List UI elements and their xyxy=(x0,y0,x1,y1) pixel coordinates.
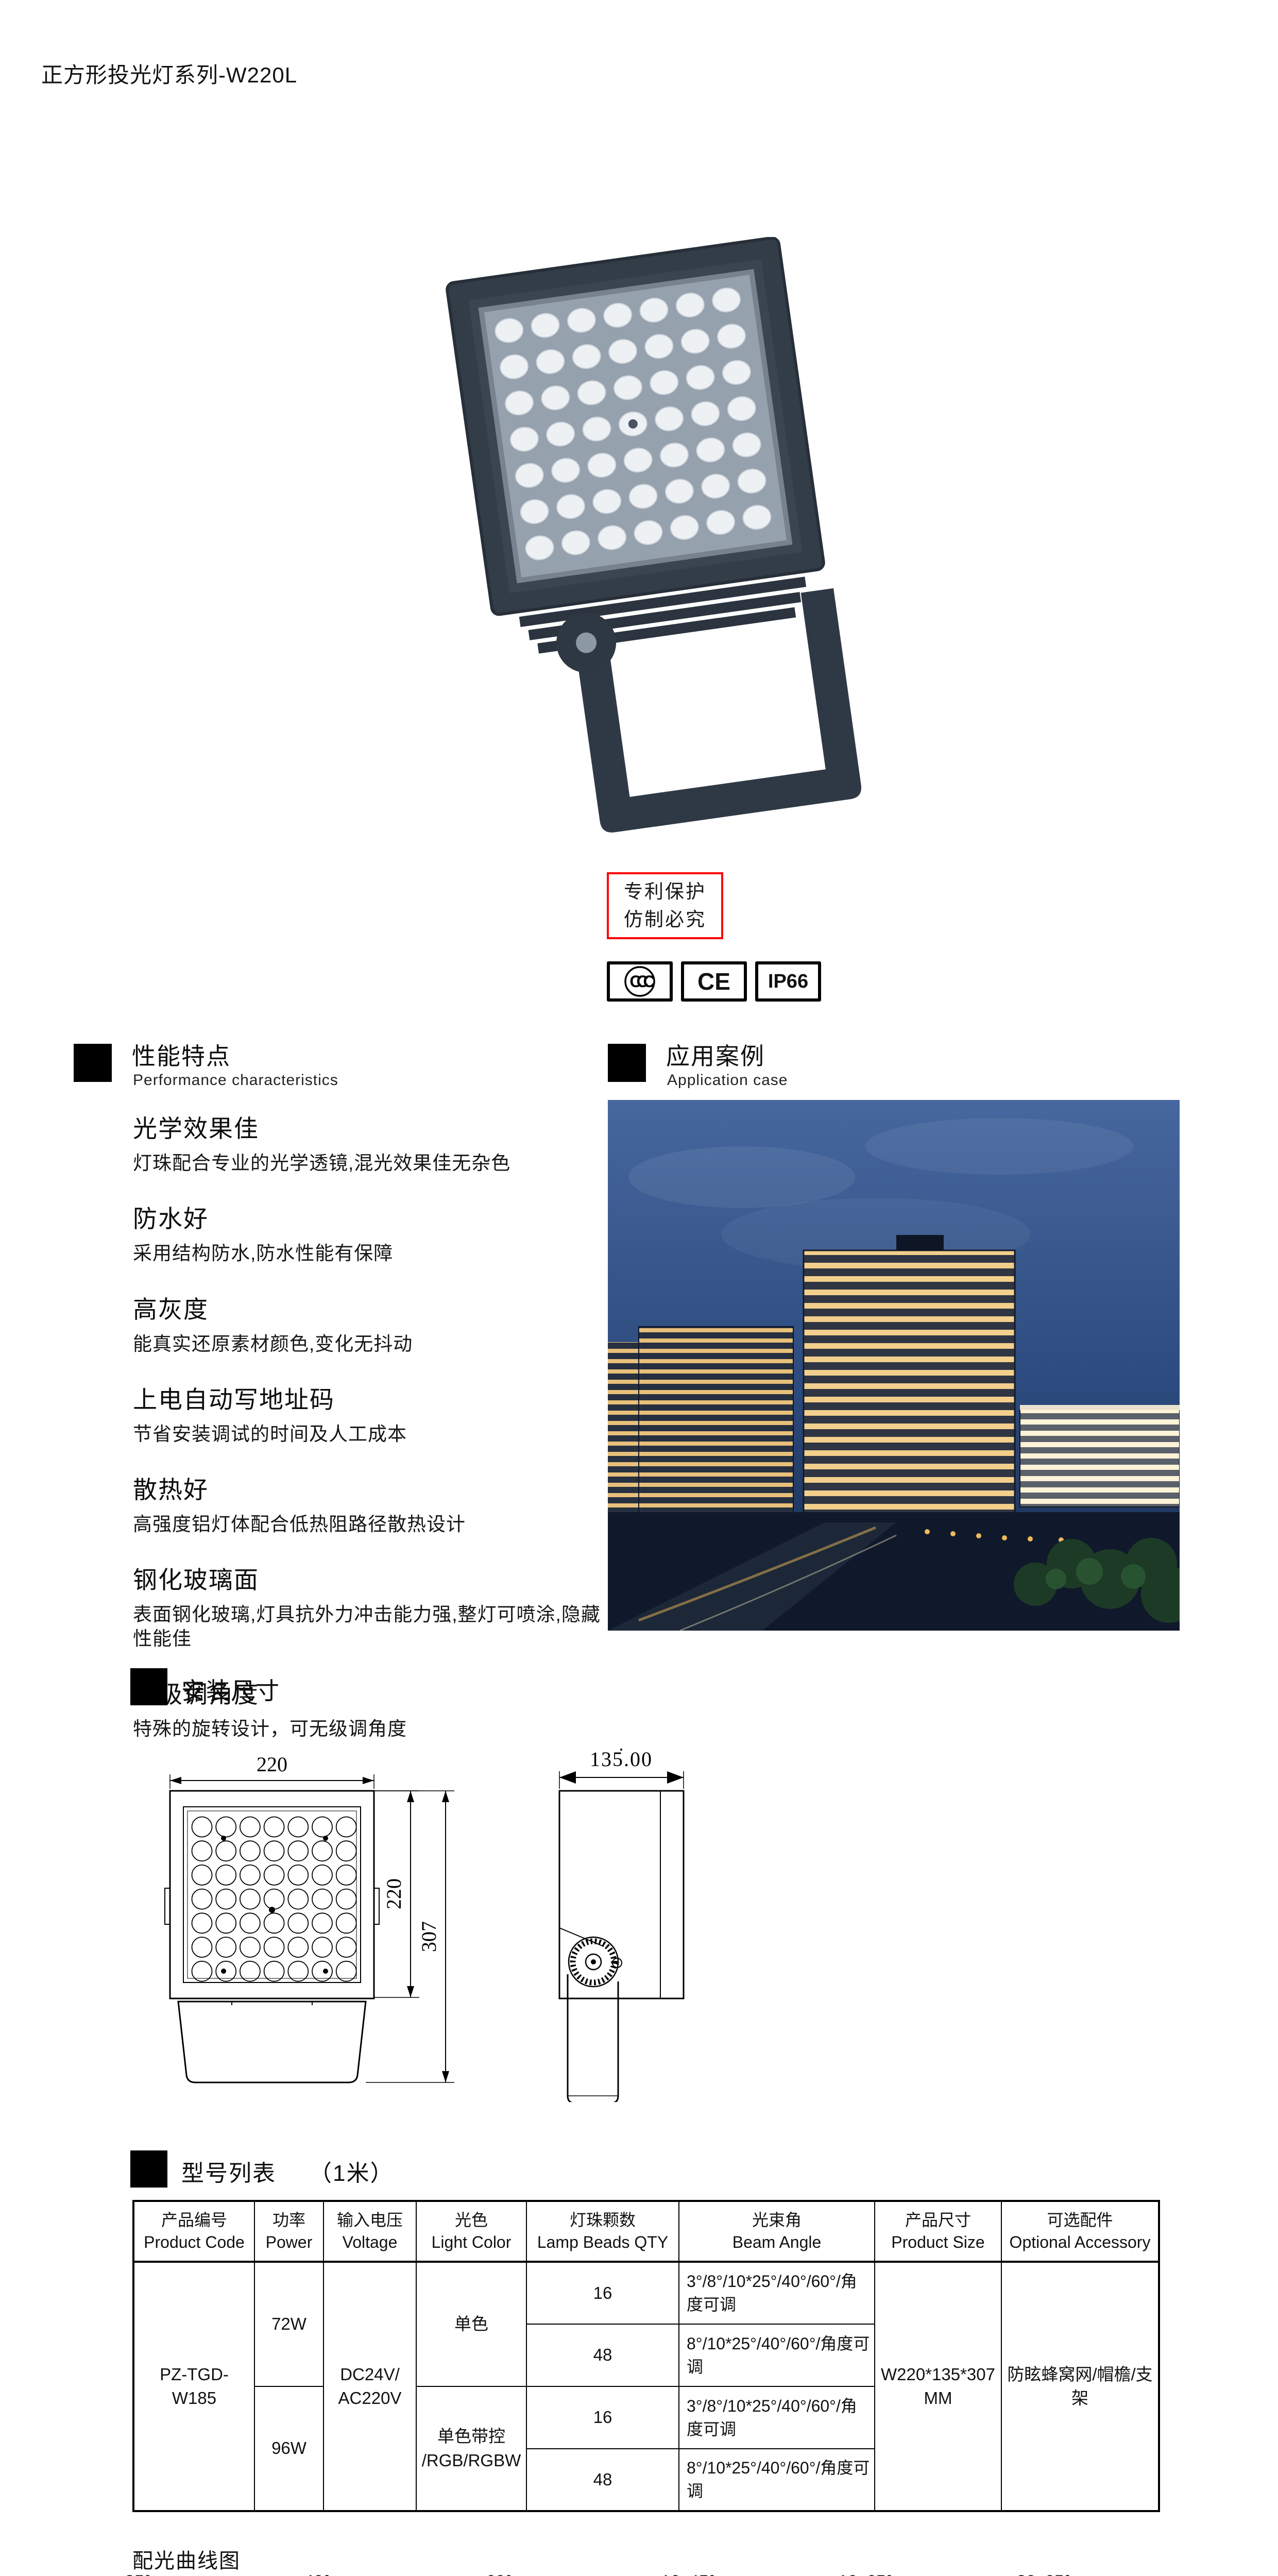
feature-desc: 节省安装调试的时间及人工成本 xyxy=(133,1422,612,1446)
certification-row: CCC CE IP66 xyxy=(607,961,821,1002)
features-list: 光学效果佳 灯珠配合专业的光学透镜,混光效果佳无杂色 防水好 采用结构防水,防水… xyxy=(133,1109,612,1741)
ip66-badge: IP66 xyxy=(755,961,821,1002)
feature-item: 上电自动写地址码 节省安装调试的时间及人工成本 xyxy=(133,1380,612,1446)
qty-cell: 48 xyxy=(526,2449,679,2511)
dimension-drawing: 220 220 307 135.00 xyxy=(155,1741,711,2102)
section-marker xyxy=(608,1044,646,1082)
section-marker xyxy=(130,2150,167,2188)
ccc-mark-icon: CCC xyxy=(613,965,667,998)
section-title-features: 性能特点 xyxy=(132,1038,231,1072)
section-subtitle-features: Performance characteristics xyxy=(133,1072,338,1089)
polar-chart-title: 10x45° xyxy=(661,2572,810,2576)
section-title-models: 型号列表 xyxy=(181,2155,276,2188)
feature-title: 上电自动写地址码 xyxy=(133,1380,612,1415)
feature-item: 高灰度 能真实还原素材颜色,变化无抖动 xyxy=(133,1290,612,1356)
col-header-product-code: 产品编号 Product Code xyxy=(133,2201,254,2262)
feature-desc: 灯珠配合专业的光学透镜,混光效果佳无杂色 xyxy=(133,1151,612,1175)
feature-item: 散热好 高强度铝灯体配合低热阻路径散热设计 xyxy=(133,1470,612,1536)
feature-item: 钢化玻璃面 表面钢化玻璃,灯具抗外力冲击能力强,整灯可喷涂,隐藏性能佳 xyxy=(133,1560,612,1651)
beam-angle-cell: 8°/10*25°/40°/60°/角度可调 xyxy=(679,2324,875,2386)
side-bracket-arm xyxy=(568,1974,618,2102)
power-cell: 96W xyxy=(254,2386,323,2511)
dim-width-label: 220 xyxy=(257,1753,287,1776)
polar-chart: 60°105°105°90°90°75°75°60°60°45°45°30°30… xyxy=(486,2572,635,2576)
ip66-label: IP66 xyxy=(768,971,808,993)
polar-chart-title: 40° xyxy=(304,2572,453,2576)
photometric-label: 配光曲线图 xyxy=(132,2544,241,2574)
section-subtitle-application: Application case xyxy=(667,1072,788,1089)
section-title-application: 应用案例 xyxy=(666,1038,765,1072)
dim-total-height-label: 307 xyxy=(417,1921,440,1952)
accessory-cell: 防眩蜂窝网/帽檐/支架 xyxy=(1001,2262,1159,2511)
lens-hole-grid xyxy=(192,1817,356,1981)
polar-chart: 40°105°105°90°90°75°75°60°60°45°45°30°30… xyxy=(304,2572,453,2576)
application-photo xyxy=(608,1100,1180,1631)
col-header-voltage: 输入电压 Voltage xyxy=(323,2201,416,2262)
qty-cell: 16 xyxy=(526,2386,679,2449)
section-title-models-suffix: （1米） xyxy=(309,2155,394,2188)
feature-desc: 能真实还原素材颜色,变化无抖动 xyxy=(133,1332,612,1356)
product-size-cell: W220*135*307 MM xyxy=(875,2262,1001,2511)
dim-depth-label: 135.00 xyxy=(590,1748,653,1771)
feature-desc: 采用结构防水,防水性能有保障 xyxy=(133,1242,612,1265)
feature-title: 防水好 xyxy=(133,1199,612,1234)
section-marker xyxy=(74,1044,112,1082)
feature-title: 高灰度 xyxy=(133,1290,612,1325)
polar-chart: 20x65°105°105°90°90°75°75°60°60°45°45°30… xyxy=(1016,2572,1165,2576)
ccc-badge: CCC xyxy=(607,961,673,1002)
beam-angle-cell: 8°/10*25°/40°/60°/角度可调 xyxy=(679,2449,875,2511)
voltage-cell: DC24V/ AC220V xyxy=(323,2262,416,2511)
section-marker xyxy=(130,1668,167,1705)
svg-text:CCC: CCC xyxy=(629,972,655,991)
qty-cell: 48 xyxy=(526,2324,679,2386)
col-header-power: 功率 Power xyxy=(254,2201,323,2262)
light-color-cell: 单色带控 /RGB/RGBW xyxy=(416,2386,526,2511)
polar-chart: 25°105°105°90°90°75°75°60°60°45°45°30°30… xyxy=(125,2572,274,2576)
section-title-install: 安装尺寸 xyxy=(181,1672,280,1706)
dim-side-view xyxy=(559,1791,684,1998)
col-header-beam-angle: 光束角 Beam Angle xyxy=(679,2201,875,2262)
feature-desc: 高强度铝灯体配合低热阻路径散热设计 xyxy=(133,1513,612,1536)
feature-title: 散热好 xyxy=(133,1470,612,1505)
dim-height-label: 220 xyxy=(382,1878,405,1909)
patent-line: 专利保护 xyxy=(624,878,706,906)
polar-chart-title: 25° xyxy=(125,2572,274,2576)
feature-item: 光学效果佳 灯珠配合专业的光学透镜,混光效果佳无杂色 xyxy=(133,1109,612,1175)
polar-chart-title: 20x65° xyxy=(1016,2572,1165,2576)
product-code-cell: PZ-TGD- W185 xyxy=(133,2262,254,2511)
dim-front-view xyxy=(170,1791,374,1998)
polar-chart: 10x45°105°105°90°90°75°75°60°60°45°45°30… xyxy=(661,2572,810,2576)
feature-title: 光学效果佳 xyxy=(133,1109,612,1144)
polar-chart-title: 60° xyxy=(486,2572,635,2576)
feature-desc: 表面钢化玻璃,灯具抗外力冲击能力强,整灯可喷涂,隐藏性能佳 xyxy=(133,1603,612,1651)
datasheet-page: 正方形投光灯系列-W220L 专利保护 仿制必究 xyxy=(0,0,1278,2576)
beam-angle-cell: 3°/8°/10*25°/40°/60°/角度可调 xyxy=(679,2262,875,2324)
beam-angle-cell: 3°/8°/10*25°/40°/60°/角度可调 xyxy=(679,2386,875,2449)
page-title: 正方形投光灯系列-W220L xyxy=(41,58,297,89)
models-table: 产品编号 Product Code 功率 Power 输入电压 Voltage … xyxy=(132,2200,1160,2512)
polar-chart: 10x65°105°105°90°90°75°75°60°60°45°45°30… xyxy=(838,2572,987,2576)
feature-title: 钢化玻璃面 xyxy=(133,1560,612,1596)
col-header-light-color: 光色 Light Color xyxy=(416,2201,526,2262)
ce-mark-icon: CE xyxy=(697,968,730,995)
product-photo xyxy=(402,237,907,866)
col-header-lamp-beads: 灯珠颗数 Lamp Beads QTY xyxy=(526,2201,679,2262)
feature-desc: 特殊的旋转设计，可无级调角度 xyxy=(133,1717,612,1741)
col-header-product-size: 产品尺寸 Product Size xyxy=(875,2201,1001,2262)
light-color-cell: 单色 xyxy=(416,2262,526,2386)
patent-line: 仿制必究 xyxy=(624,906,706,934)
front-bracket xyxy=(178,2002,366,2082)
power-cell: 72W xyxy=(254,2262,323,2386)
feature-item: 防水好 采用结构防水,防水性能有保障 xyxy=(133,1199,612,1265)
qty-cell: 16 xyxy=(526,2262,679,2324)
polar-chart-title: 10x65° xyxy=(838,2572,987,2576)
patent-box: 专利保护 仿制必究 xyxy=(607,872,723,939)
ce-badge: CE xyxy=(681,961,747,1002)
col-header-accessory: 可选配件 Optional Accessory xyxy=(1001,2201,1159,2262)
